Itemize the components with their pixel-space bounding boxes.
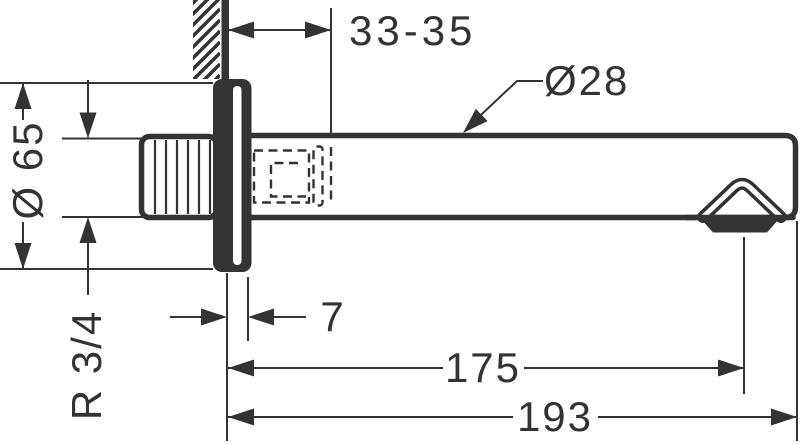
- escutcheon: [213, 79, 252, 272]
- aerator-face: [701, 219, 779, 233]
- thread-body: [142, 137, 217, 218]
- dim-escutcheon-diameter-label: Ø 65: [4, 120, 51, 219]
- arrowhead-right: [771, 409, 797, 426]
- valve-stem: [314, 147, 323, 206]
- outlet-chevron-outer: [703, 184, 781, 217]
- aerator-outlet: [686, 184, 793, 233]
- valve-inner: [271, 163, 306, 197]
- arrowhead-left: [248, 309, 274, 326]
- arrowhead-right: [305, 22, 331, 39]
- threaded-connector: [142, 137, 217, 218]
- thread-lines: [155, 140, 210, 214]
- arrowhead-left: [228, 22, 254, 39]
- dim-wall-offset-label: 33-35: [349, 7, 476, 54]
- arrowhead-left: [228, 409, 254, 426]
- dim-total-projection-label: 193: [517, 393, 593, 440]
- wall-face-line: [222, 0, 230, 81]
- dim-aerator-projection: 175: [228, 237, 744, 394]
- arrowhead-left: [228, 360, 254, 377]
- valve-outline: [254, 151, 309, 203]
- arrowhead-right: [718, 360, 744, 377]
- arrowhead-up: [80, 217, 97, 243]
- dim-escutcheon-depth: 7: [170, 273, 346, 441]
- dim-thread-size-label: R 3/4: [63, 310, 110, 420]
- arrowhead-down: [80, 113, 97, 139]
- hidden-valve-dashed: [254, 147, 331, 206]
- escutcheon-body: [213, 79, 252, 272]
- dim-wall-offset: 33-35: [228, 7, 476, 136]
- arrowhead-up: [15, 83, 32, 109]
- dim-total-projection: 193: [228, 221, 797, 441]
- escutcheon-face: [233, 86, 242, 265]
- dim-spout-diameter: Ø28: [463, 57, 629, 133]
- technical-drawing: 33-35 Ø28 Ø 65 R 3/4 7: [0, 0, 802, 444]
- arrowhead-right: [201, 309, 227, 326]
- dim-thread-size: R 3/4: [62, 80, 143, 420]
- dim-escutcheon-depth-label: 7: [320, 293, 345, 340]
- drawing-canvas: 33-35 Ø28 Ø 65 R 3/4 7: [0, 0, 802, 444]
- dim-aerator-projection-label: 175: [445, 344, 521, 391]
- dim-spout-diameter-label: Ø28: [544, 57, 629, 104]
- arrowhead-down: [15, 243, 32, 269]
- dim-escutcheon-diameter: Ø 65: [0, 83, 213, 269]
